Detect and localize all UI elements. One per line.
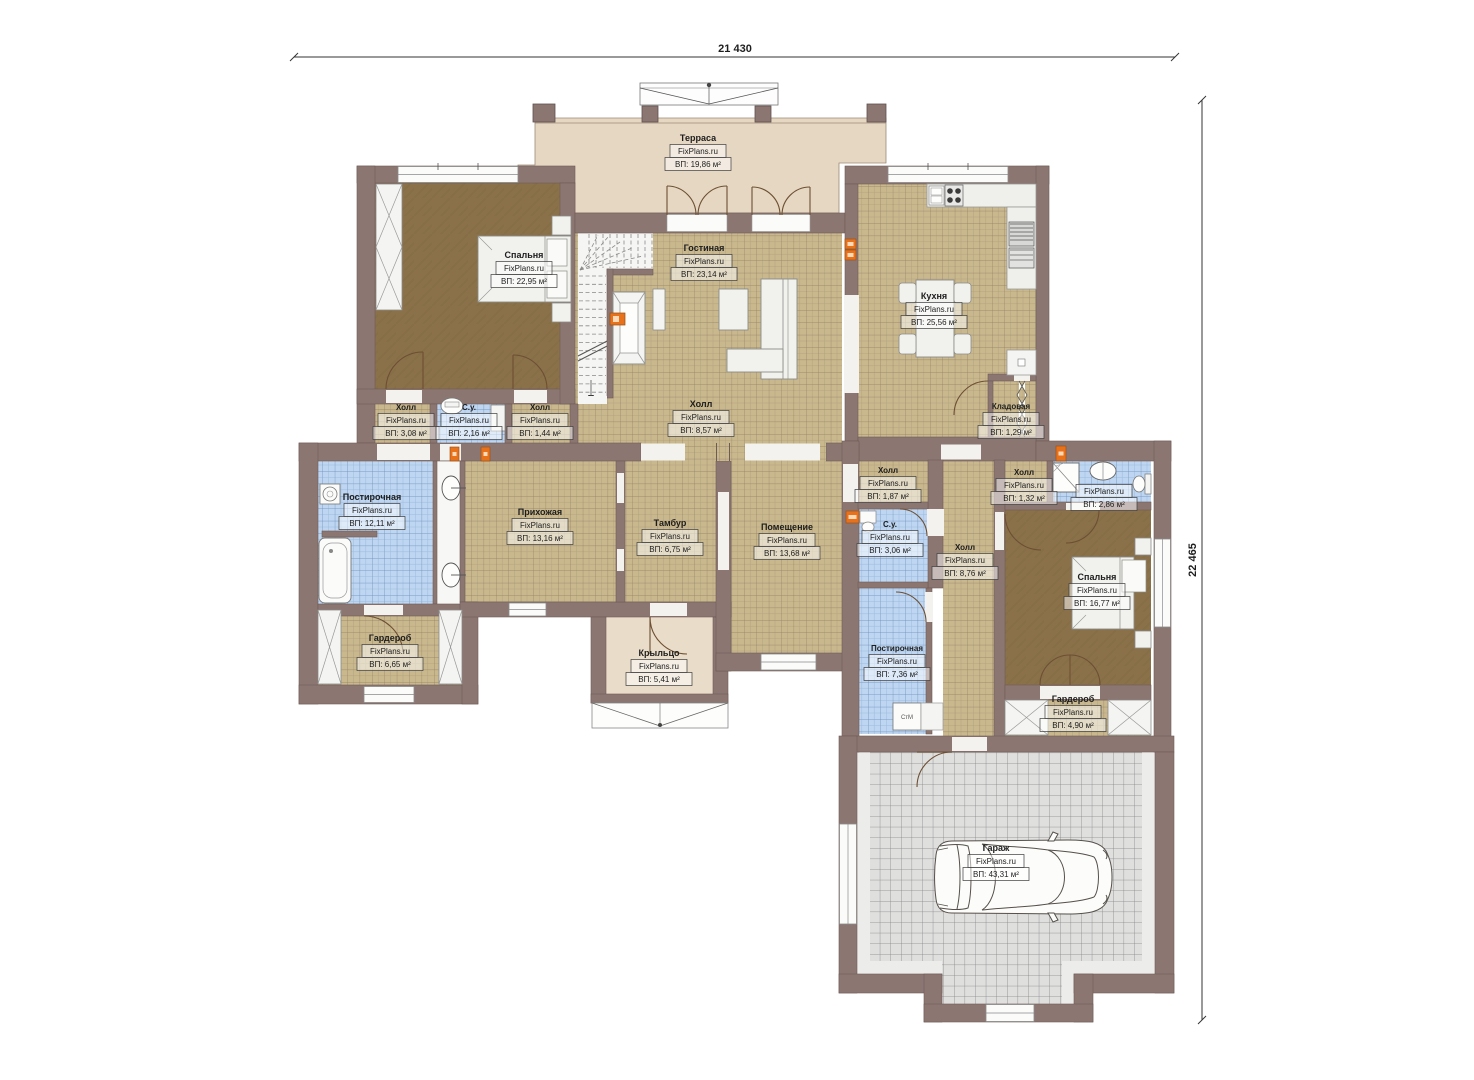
svg-text:ВП: 6,75 м²: ВП: 6,75 м²	[649, 545, 691, 554]
svg-text:21 430: 21 430	[718, 43, 752, 55]
svg-text:Холл: Холл	[1014, 468, 1034, 477]
svg-text:Гараж: Гараж	[983, 843, 1010, 853]
svg-text:FixPlans.ru: FixPlans.ru	[870, 533, 910, 542]
svg-text:ВП: 5,41 м²: ВП: 5,41 м²	[638, 675, 680, 684]
svg-text:FixPlans.ru: FixPlans.ru	[681, 413, 721, 422]
svg-text:FixPlans.ru: FixPlans.ru	[370, 647, 410, 656]
svg-text:ВП: 13,68 м²: ВП: 13,68 м²	[764, 549, 810, 558]
svg-text:ВП: 3,06 м²: ВП: 3,06 м²	[869, 546, 911, 555]
svg-text:ВП: 1,29 м²: ВП: 1,29 м²	[990, 428, 1032, 437]
svg-text:Кухня: Кухня	[921, 291, 947, 301]
svg-text:FixPlans.ru: FixPlans.ru	[914, 305, 954, 314]
svg-text:ВП: 4,90 м²: ВП: 4,90 м²	[1052, 721, 1094, 730]
svg-text:С.у.: С.у.	[462, 403, 476, 412]
svg-text:ВП: 43,31 м²: ВП: 43,31 м²	[973, 870, 1019, 879]
svg-text:ВП: 16,77 м²: ВП: 16,77 м²	[1074, 599, 1120, 608]
svg-text:Холл: Холл	[955, 543, 975, 552]
svg-text:FixPlans.ru: FixPlans.ru	[868, 479, 908, 488]
svg-text:Тамбур: Тамбур	[654, 518, 687, 528]
svg-text:FixPlans.ru: FixPlans.ru	[352, 506, 392, 515]
svg-text:FixPlans.ru: FixPlans.ru	[1053, 708, 1093, 717]
svg-text:ВП: 22,95 м²: ВП: 22,95 м²	[501, 277, 547, 286]
svg-text:Крыльцо: Крыльцо	[639, 648, 680, 658]
svg-text:ВП: 3,08 м²: ВП: 3,08 м²	[385, 429, 427, 438]
svg-text:ВП: 1,44 м²: ВП: 1,44 м²	[519, 429, 561, 438]
svg-text:Терраса: Терраса	[680, 133, 717, 143]
svg-text:СтМ: СтМ	[901, 715, 913, 721]
svg-text:ВП: 13,16 м²: ВП: 13,16 м²	[517, 534, 563, 543]
svg-text:FixPlans.ru: FixPlans.ru	[1077, 586, 1117, 595]
svg-text:Кладовая: Кладовая	[992, 402, 1031, 411]
svg-text:FixPlans.ru: FixPlans.ru	[449, 416, 489, 425]
svg-text:ВП: 7,36 м²: ВП: 7,36 м²	[876, 670, 918, 679]
svg-text:Спальня: Спальня	[505, 250, 544, 260]
svg-text:ВП: 8,76 м²: ВП: 8,76 м²	[944, 569, 986, 578]
svg-text:С.у.: С.у.	[883, 520, 897, 529]
svg-text:ВП: 6,65 м²: ВП: 6,65 м²	[369, 660, 411, 669]
svg-text:FixPlans.ru: FixPlans.ru	[945, 556, 985, 565]
svg-text:ВП: 8,57 м²: ВП: 8,57 м²	[680, 426, 722, 435]
svg-text:FixPlans.ru: FixPlans.ru	[991, 415, 1031, 424]
svg-text:FixPlans.ru: FixPlans.ru	[877, 657, 917, 666]
svg-text:ВП: 25,56 м²: ВП: 25,56 м²	[911, 318, 957, 327]
svg-text:Гостиная: Гостиная	[684, 243, 725, 253]
svg-text:FixPlans.ru: FixPlans.ru	[639, 662, 679, 671]
svg-text:FixPlans.ru: FixPlans.ru	[650, 532, 690, 541]
svg-text:FixPlans.ru: FixPlans.ru	[520, 416, 560, 425]
svg-text:22 465: 22 465	[1187, 543, 1199, 577]
svg-text:FixPlans.ru: FixPlans.ru	[976, 857, 1016, 866]
svg-text:Постирочная: Постирочная	[871, 644, 923, 653]
svg-text:FixPlans.ru: FixPlans.ru	[504, 264, 544, 273]
svg-text:ВП: 23,14 м²: ВП: 23,14 м²	[681, 270, 727, 279]
svg-text:ВП: 19,86 м²: ВП: 19,86 м²	[675, 160, 721, 169]
svg-text:FixPlans.ru: FixPlans.ru	[767, 536, 807, 545]
svg-text:ВП: 12,11 м²: ВП: 12,11 м²	[349, 519, 395, 528]
svg-text:Холл: Холл	[530, 403, 550, 412]
svg-text:Гардероб: Гардероб	[1052, 694, 1095, 704]
svg-text:ВП: 1,87 м²: ВП: 1,87 м²	[867, 492, 909, 501]
svg-text:FixPlans.ru: FixPlans.ru	[520, 521, 560, 530]
svg-text:Холл: Холл	[878, 466, 898, 475]
svg-text:Спальня: Спальня	[1078, 572, 1117, 582]
svg-text:Холл: Холл	[396, 403, 416, 412]
svg-text:FixPlans.ru: FixPlans.ru	[386, 416, 426, 425]
svg-text:Гардероб: Гардероб	[369, 633, 412, 643]
svg-text:FixPlans.ru: FixPlans.ru	[678, 147, 718, 156]
svg-text:FixPlans.ru: FixPlans.ru	[684, 257, 724, 266]
svg-text:FixPlans.ru: FixPlans.ru	[1084, 487, 1124, 496]
svg-text:ВП: 2,16 м²: ВП: 2,16 м²	[448, 429, 490, 438]
svg-text:ВП: 1,32 м²: ВП: 1,32 м²	[1003, 494, 1045, 503]
svg-text:Прихожая: Прихожая	[518, 507, 562, 517]
svg-text:ВП: 2,86 м²: ВП: 2,86 м²	[1083, 500, 1125, 509]
svg-text:FixPlans.ru: FixPlans.ru	[1004, 481, 1044, 490]
svg-text:Холл: Холл	[690, 399, 713, 409]
svg-text:Помещение: Помещение	[761, 522, 813, 532]
svg-text:Постирочная: Постирочная	[343, 492, 401, 502]
